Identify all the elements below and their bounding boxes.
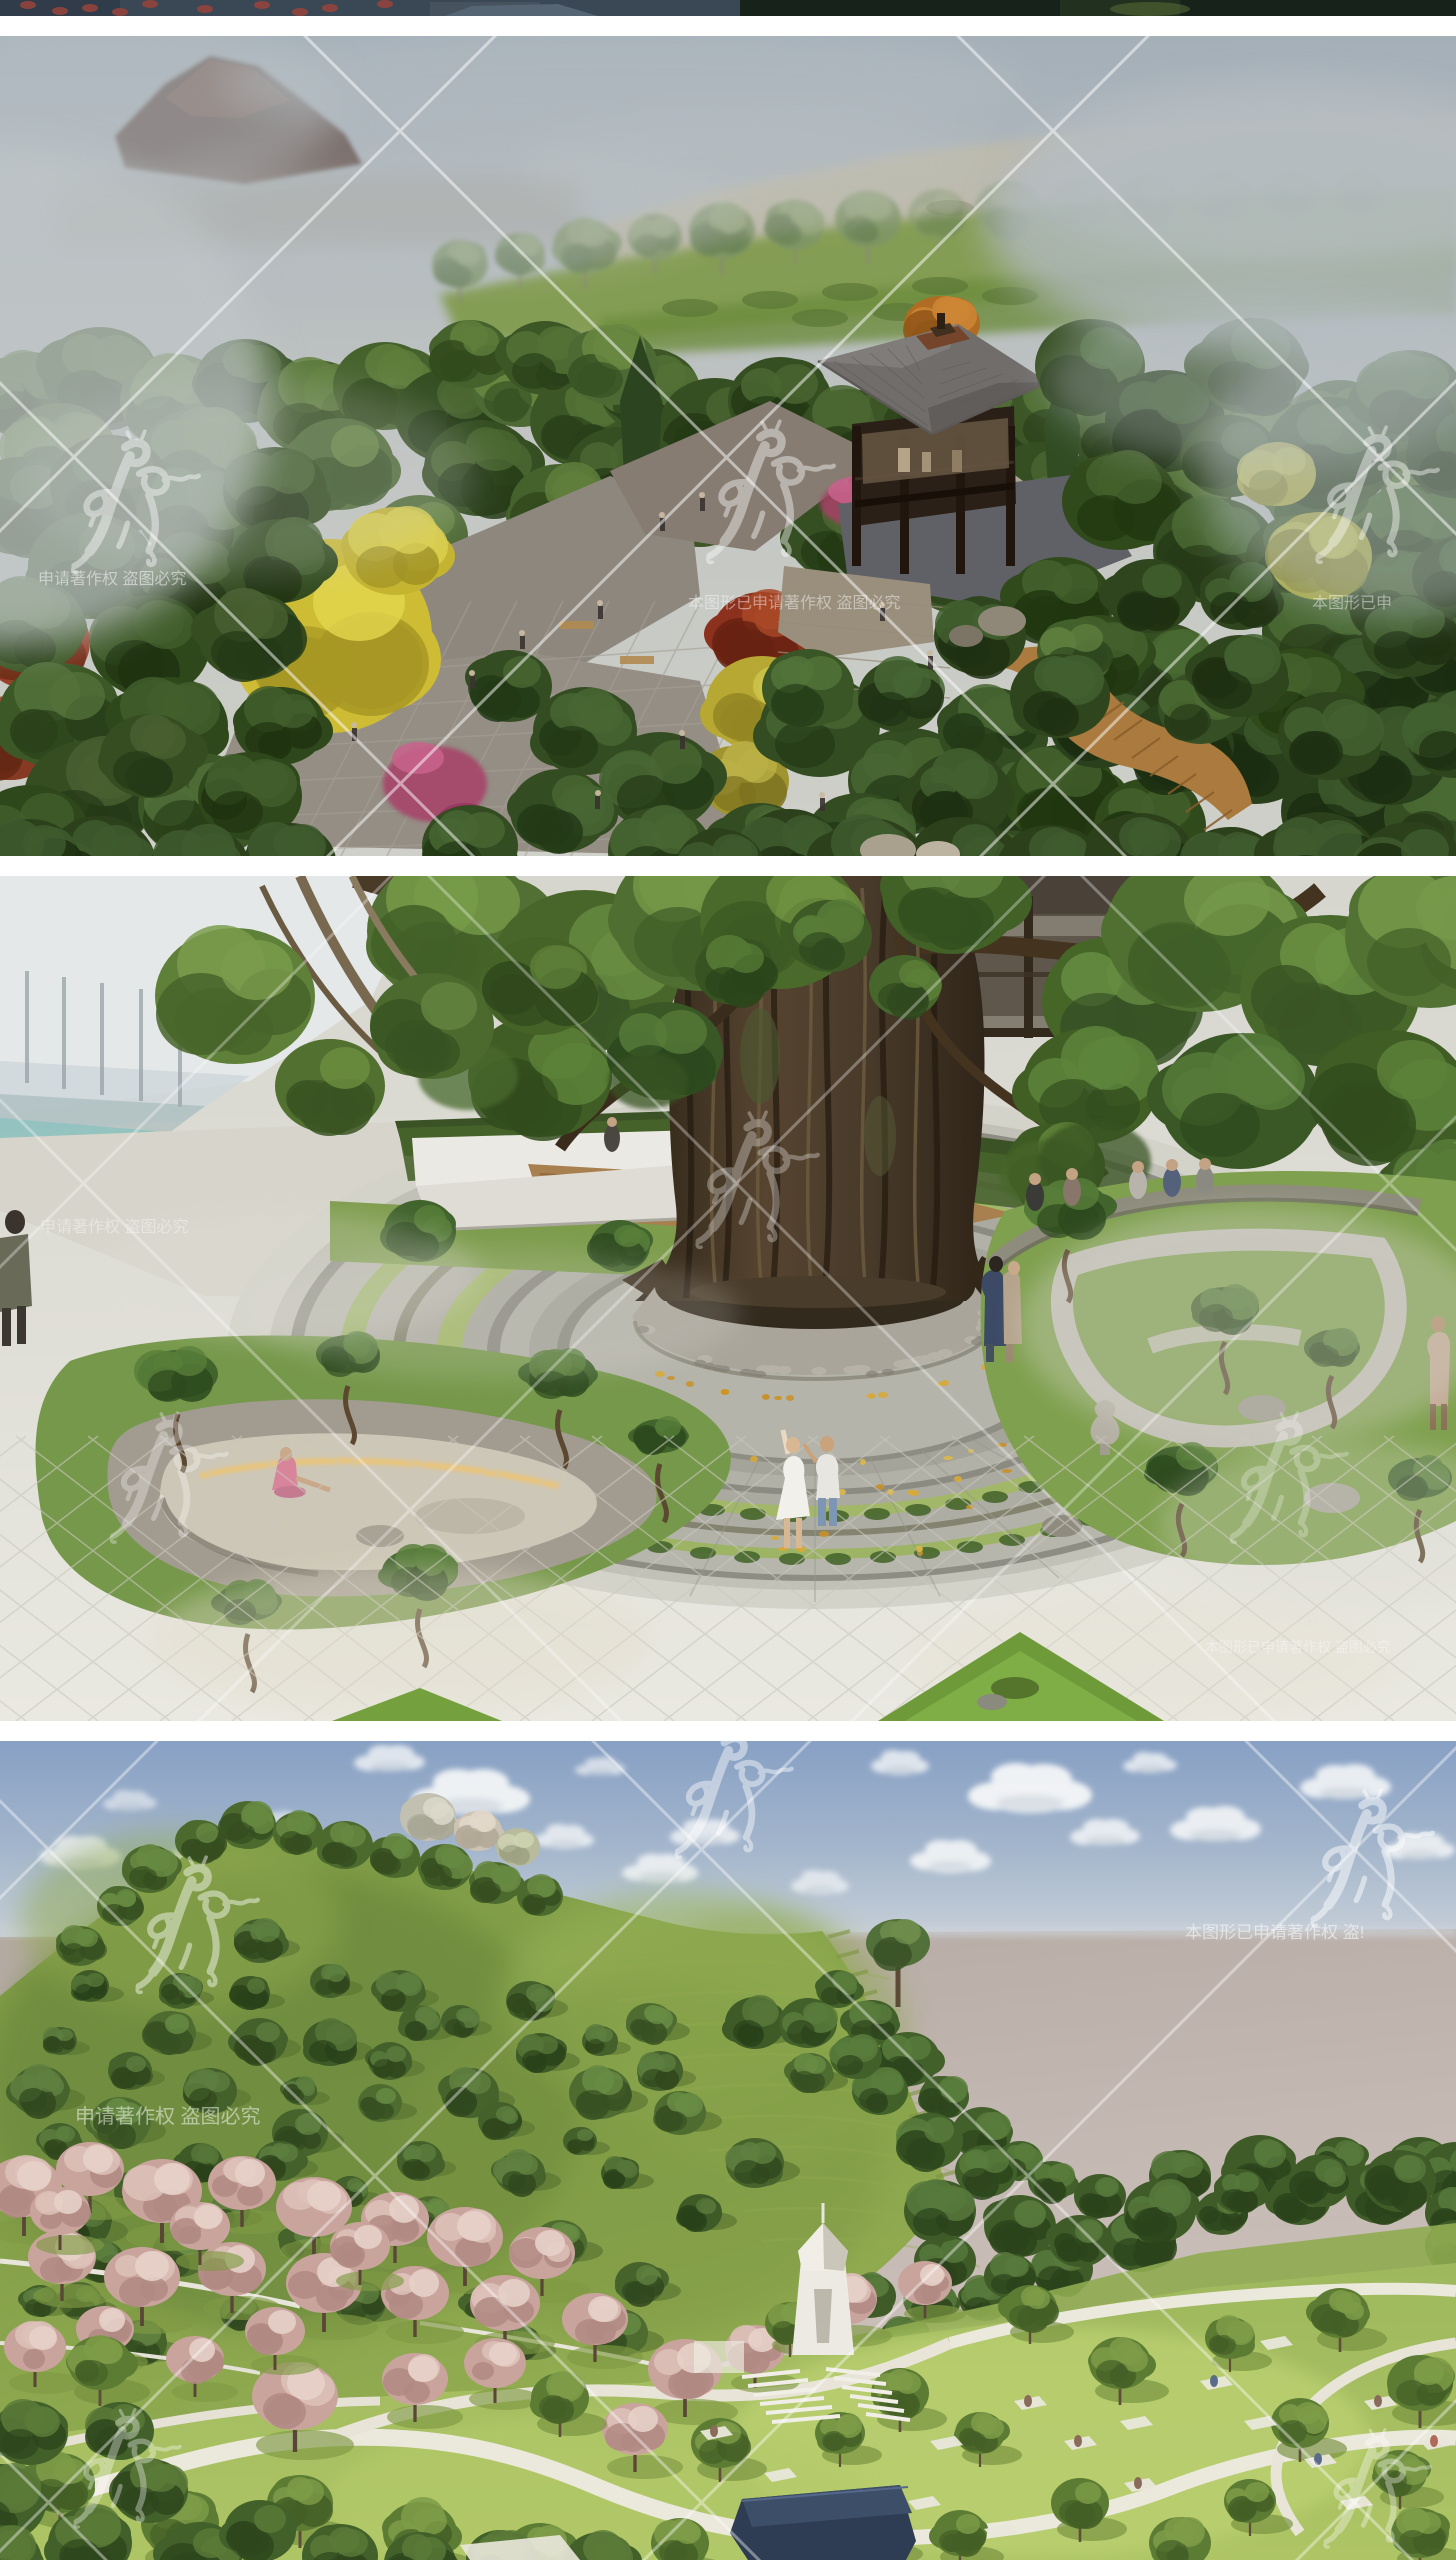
svg-text:本图形已申: 本图形已申: [1312, 594, 1392, 612]
svg-text:申请著作权 盗图必究: 申请著作权 盗图必究: [38, 570, 186, 588]
svg-text:本图形已申请著作权 盗图必究: 本图形已申请著作权 盗图必究: [688, 594, 900, 612]
svg-text:申请著作权 盗图必究: 申请著作权 盗图必究: [40, 1218, 188, 1236]
svg-text:本图形已申请著作权 盗图必究: 本图形已申请著作权 盗图必究: [1205, 1639, 1391, 1655]
svg-text:申请著作权 盗图必究: 申请著作权 盗图必究: [75, 2105, 261, 2128]
svg-text:本图形已申请著作权 盗!: 本图形已申请著作权 盗!: [1185, 1923, 1364, 1942]
